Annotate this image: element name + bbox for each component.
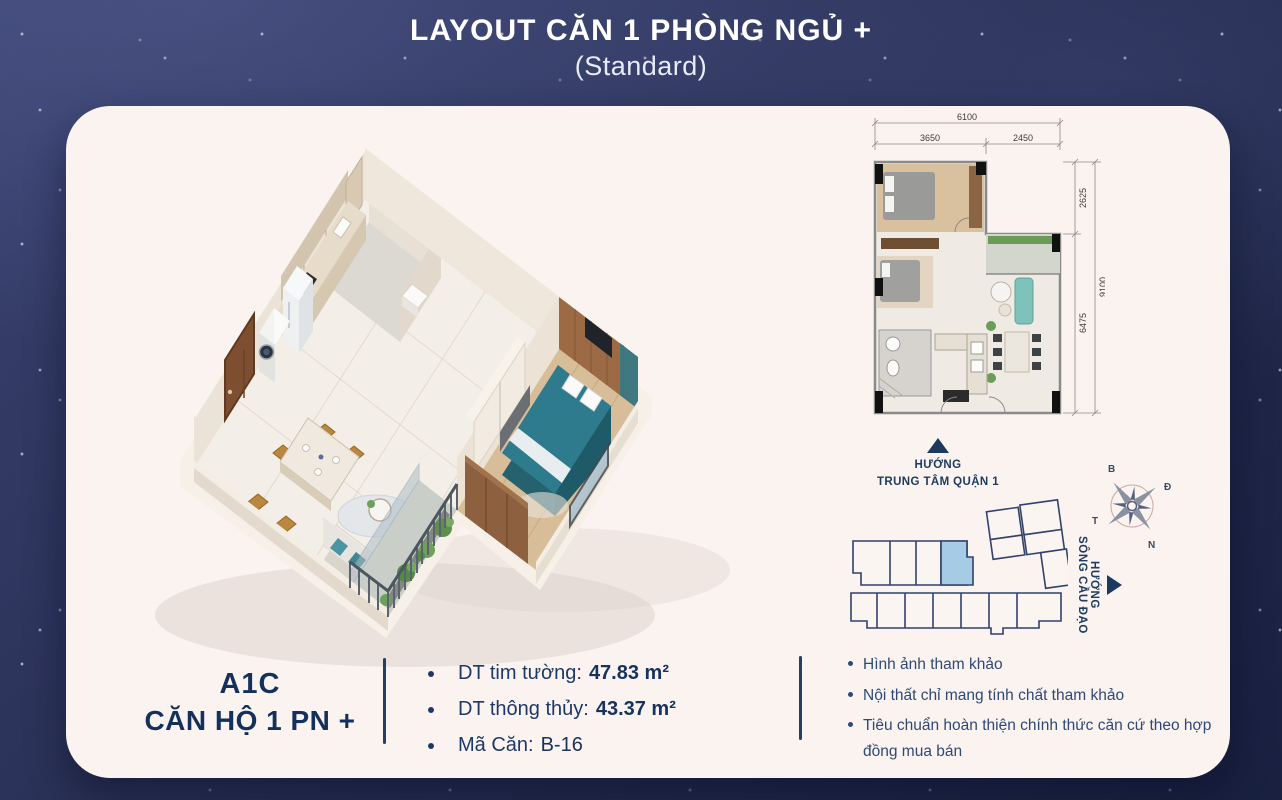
dim-bed-width: 3650 [920,133,940,143]
apartment-3d-render [140,140,800,680]
bullet-icon [848,692,853,697]
unit-code: A1C [120,668,380,701]
spec-value: 47.83 m² [589,662,669,685]
spec-row-gross-area: DT tim tường: 47.83 m² [428,662,758,685]
right-triangle-icon [1107,575,1122,595]
compass-east-label: Đ [1164,482,1171,493]
dim-lines-top [872,118,1063,154]
plan-stove [971,360,983,372]
page: { "title": { "main": "LAYOUT CĂN 1 PHÒNG… [0,0,1282,800]
note-text: Nội thất chỉ mang tính chất tham khảo [863,683,1124,709]
plan-pillow2 [885,196,894,212]
compass-south-label: N [1148,540,1155,551]
direction-river: HƯỚNG SÔNG CẦU ĐẠO [1076,536,1122,634]
direction-city: HƯỚNG TRUNG TÂM QUẬN 1 [848,438,1028,492]
keyplan-row-bottom [851,593,1061,634]
dim-living-depth: 6475 [1078,313,1088,333]
plan-kitchen-sink [971,342,983,354]
bullet-icon [848,722,853,727]
keyplan-highlighted-unit [941,541,973,585]
bullet-icon [428,743,434,749]
note-text: Tiêu chuẩn hoàn thiện chính thức căn cứ … [863,713,1216,764]
plan-sink [886,337,900,351]
building-keyplan [843,497,1068,637]
keyplan-cluster [986,500,1068,595]
spec-value: B-16 [541,734,583,757]
plan-sofa [1015,278,1033,324]
direction-city-line2: TRUNG TÂM QUẬN 1 [848,474,1028,491]
content-card: 6100 3650 2450 2625 6475 9100 [66,106,1230,778]
compass-west-label: T [1092,516,1098,527]
dim-total-width: 6100 [957,112,977,122]
plan-side-table [999,304,1011,316]
direction-river-line2: SÔNG CẦU ĐẠO [1076,536,1088,634]
spec-row-unit-id: Mã Căn: B-16 [428,734,758,757]
bullet-icon [428,671,434,677]
plan-hedge [988,236,1058,244]
door-handle [228,390,232,394]
compass-north-label: B [1108,464,1115,475]
divider-1 [383,658,386,744]
plan-toilet [887,360,899,376]
table-plant [367,500,375,508]
bullet-icon [428,707,434,713]
plan-pillow3 [882,263,890,277]
direction-river-line1: HƯỚNG [1088,536,1100,634]
plan-wardrobe [969,166,982,228]
dim-void-width: 2450 [1013,133,1033,143]
dim-bed-depth: 2625 [1078,188,1088,208]
divider-2 [799,656,802,740]
direction-river-text: HƯỚNG SÔNG CẦU ĐẠO [1076,536,1100,634]
plan-dining-table [1005,332,1029,372]
plan-closet-strip [881,238,939,249]
unit-name: CĂN HỘ 1 PN + [120,705,380,737]
note-row: Hình ảnh tham khảo [848,652,1216,678]
spec-label: DT thông thủy: [458,698,589,721]
direction-city-line1: HƯỚNG [848,457,1028,474]
spec-label: Mã Căn: [458,734,534,757]
bullet-icon [848,661,853,666]
note-text: Hình ảnh tham khảo [863,652,1003,678]
floor-plan-2d: 6100 3650 2450 2625 6475 9100 [855,110,1105,435]
note-row: Nội thất chỉ mang tính chất tham khảo [848,683,1216,709]
dim-total-depth: 9100 [1098,277,1105,297]
plan-coffee-table [991,282,1011,302]
page-subtitle: (Standard) [0,51,1282,82]
spec-value: 43.37 m² [596,698,676,721]
page-header: LAYOUT CĂN 1 PHÒNG NGỦ + (Standard) [0,14,1282,82]
plan-pillow [885,176,894,192]
note-row: Tiêu chuẩn hoàn thiện chính thức căn cứ … [848,713,1216,764]
spec-row-net-area: DT thông thủy: 43.37 m² [428,698,758,721]
plan-plant1 [986,321,996,331]
page-title: LAYOUT CĂN 1 PHÒNG NGỦ + [0,14,1282,48]
unit-specs: DT tim tường: 47.83 m² DT thông thủy: 43… [428,662,758,770]
disclaimer-notes: Hình ảnh tham khảo Nội thất chỉ mang tín… [848,652,1216,769]
up-triangle-icon [927,438,949,453]
spec-label: DT tim tường: [458,662,582,685]
unit-code-block: A1C CĂN HỘ 1 PN + [120,668,380,737]
